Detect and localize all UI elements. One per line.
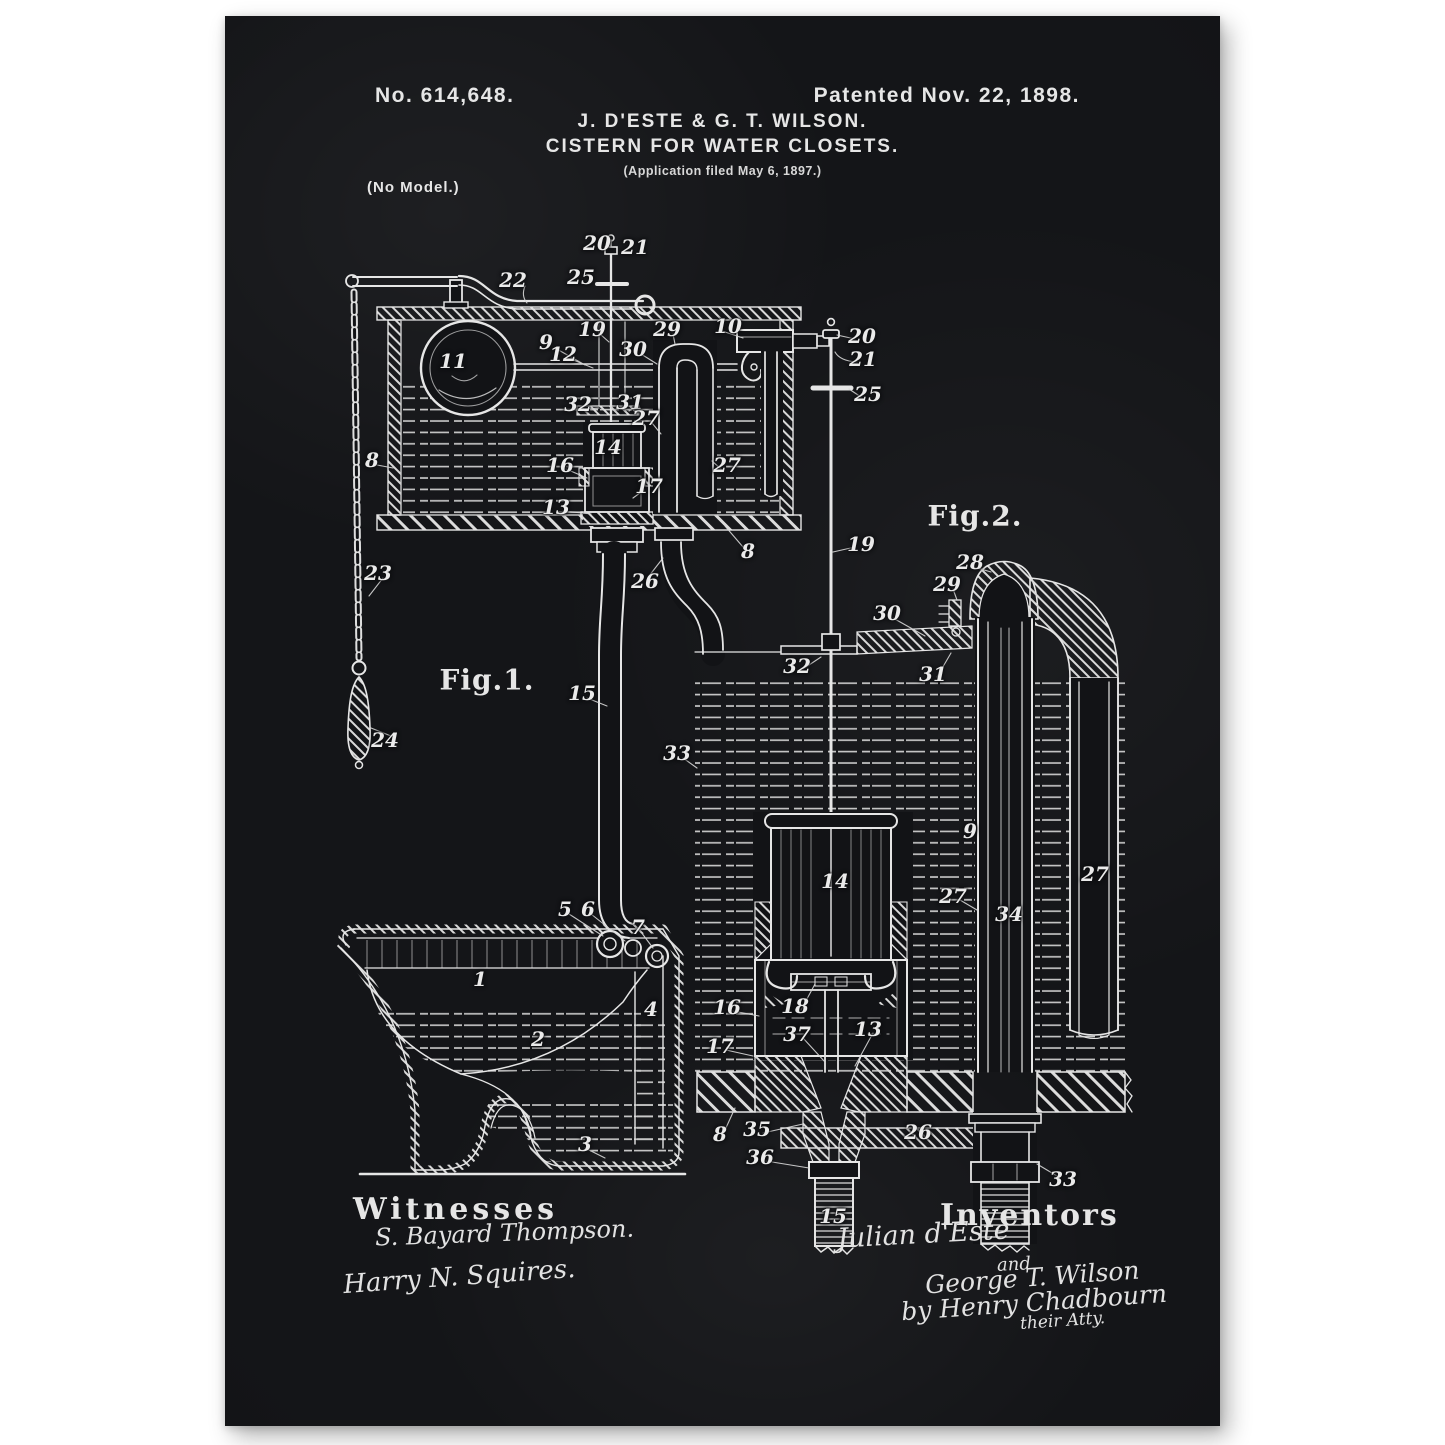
reference-label-fig2-27: 27 bbox=[939, 884, 967, 908]
patent-number: No. 614,648. bbox=[375, 84, 514, 108]
reference-label-fig1-32: 32 bbox=[564, 392, 592, 416]
reference-label-fig2-34: 34 bbox=[995, 902, 1023, 926]
patent-title: CISTERN FOR WATER CLOSETS. bbox=[225, 136, 1220, 158]
reference-label-fig1-6: 6 bbox=[581, 897, 595, 921]
application-line: (Application filed May 6, 1897.) bbox=[225, 164, 1220, 178]
reference-label-fig1-20: 20 bbox=[583, 231, 611, 255]
reference-label-fig2-21: 21 bbox=[849, 347, 877, 371]
no-model-note: (No Model.) bbox=[367, 179, 460, 196]
reference-label-fig2-18: 18 bbox=[781, 994, 809, 1018]
reference-label-fig1-19: 19 bbox=[578, 317, 606, 341]
reference-label-fig1-24: 24 bbox=[371, 728, 399, 752]
reference-label-fig1-27: 27 bbox=[632, 406, 660, 430]
figure-1-label: Fig.1. bbox=[439, 664, 534, 697]
reference-label-fig2-31: 31 bbox=[919, 662, 947, 686]
reference-label-fig1-11: 11 bbox=[439, 349, 467, 373]
reference-label-fig1-25: 25 bbox=[567, 265, 595, 289]
reference-label-fig2-17: 17 bbox=[706, 1034, 734, 1058]
reference-label-fig2-29: 29 bbox=[933, 572, 961, 596]
reference-label-fig1-17: 17 bbox=[635, 474, 663, 498]
reference-label-fig2-25: 25 bbox=[854, 382, 882, 406]
reference-label-fig1-21: 21 bbox=[621, 235, 649, 259]
reference-label-fig1-3: 3 bbox=[578, 1132, 592, 1156]
reference-label-fig1-15: 15 bbox=[568, 681, 596, 705]
reference-label-fig1-26: 26 bbox=[631, 569, 659, 593]
reference-label-fig2-13: 13 bbox=[854, 1017, 882, 1041]
reference-label-fig1-23: 23 bbox=[364, 561, 392, 585]
reference-label-fig1-27: 27 bbox=[713, 453, 741, 477]
reference-label-fig2-9: 9 bbox=[963, 819, 977, 843]
figure-2-label: Fig.2. bbox=[927, 500, 1022, 533]
reference-label-fig1-14: 14 bbox=[594, 435, 622, 459]
reference-label-fig2-36: 36 bbox=[746, 1145, 774, 1169]
reference-label-fig1-22: 22 bbox=[499, 268, 527, 292]
reference-label-fig2-37: 37 bbox=[783, 1022, 811, 1046]
reference-label-fig2-33: 33 bbox=[1049, 1167, 1077, 1191]
page-background: No. 614,648. Patented Nov. 22, 1898. J. … bbox=[0, 0, 1445, 1445]
reference-label-fig1-16: 16 bbox=[546, 453, 574, 477]
reference-label-fig1-13: 13 bbox=[542, 495, 570, 519]
reference-label-fig2-26: 26 bbox=[904, 1120, 932, 1144]
reference-label-fig2-20: 20 bbox=[848, 324, 876, 348]
reference-label-fig1-5: 5 bbox=[558, 897, 572, 921]
patent-date: Patented Nov. 22, 1898. bbox=[814, 84, 1080, 108]
reference-label-fig2-19: 19 bbox=[847, 532, 875, 556]
reference-label-fig2-30: 30 bbox=[873, 601, 901, 625]
reference-label-fig1-29: 29 bbox=[653, 317, 681, 341]
reference-label-fig1-8: 8 bbox=[365, 448, 379, 472]
reference-label-fig1-1: 1 bbox=[473, 967, 487, 991]
reference-label-fig2-27: 27 bbox=[1081, 862, 1109, 886]
inventor-names-line: J. D'ESTE & G. T. WILSON. bbox=[225, 111, 1220, 133]
reference-label-fig1-12: 12 bbox=[549, 342, 577, 366]
reference-label-fig1-2: 2 bbox=[531, 1027, 545, 1051]
reference-label-fig2-8: 8 bbox=[713, 1122, 727, 1146]
patent-poster: No. 614,648. Patented Nov. 22, 1898. J. … bbox=[225, 16, 1220, 1426]
reference-label-fig2-16: 16 bbox=[713, 995, 741, 1019]
reference-label-fig1-4: 4 bbox=[644, 997, 658, 1021]
reference-label-fig2-28: 28 bbox=[956, 550, 984, 574]
reference-label-fig1-8: 8 bbox=[741, 539, 755, 563]
reference-label-fig1-33: 33 bbox=[663, 741, 691, 765]
reference-label-fig2-14: 14 bbox=[821, 869, 849, 893]
reference-label-fig1-7: 7 bbox=[631, 915, 645, 939]
reference-label-fig1-10: 10 bbox=[714, 314, 742, 338]
reference-label-fig2-32: 32 bbox=[783, 654, 811, 678]
reference-label-fig1-30: 30 bbox=[619, 337, 647, 361]
reference-label-fig2-35: 35 bbox=[743, 1117, 771, 1141]
